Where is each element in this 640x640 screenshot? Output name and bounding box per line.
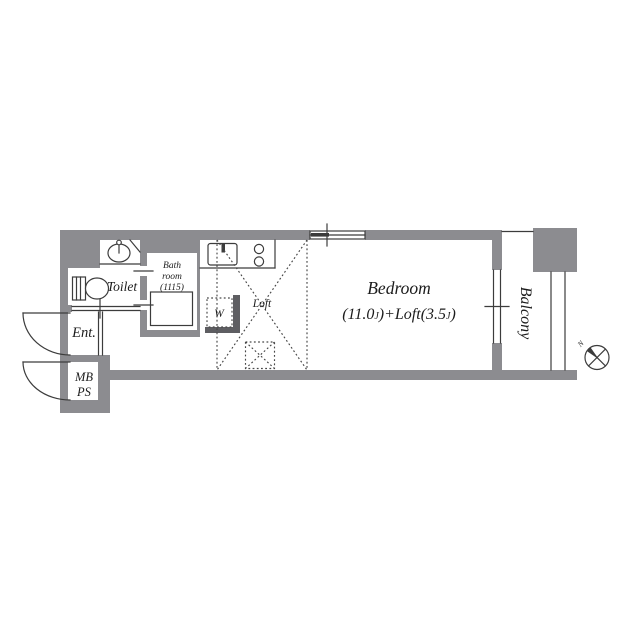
wall-east-upper [492, 240, 502, 270]
wall-top-right-run [365, 230, 502, 240]
closet-label: W [214, 308, 225, 320]
wall-bottom-left-block [60, 400, 110, 413]
plan-background [0, 0, 640, 640]
balcony-label: Balcony [517, 287, 534, 340]
meter-box-label-line1: MB [74, 370, 93, 384]
bathroom-label-line1: Bath [163, 261, 181, 271]
floor-plan: N Toilet Bath room (1115) Ent. MB PS W L… [0, 0, 640, 640]
basin-tap [117, 240, 122, 245]
bedroom-size-close: ) [449, 306, 455, 323]
wall-bottom [98, 370, 577, 380]
wall-ent-mbps-divider [60, 355, 110, 362]
toilet-tank [73, 277, 86, 300]
bedroom-size-mid: )+Loft(3.5 [378, 306, 446, 323]
wall-east-lower [492, 343, 502, 370]
north-window-pane [311, 233, 329, 237]
bedroom-size-label: (11.0J)+Loft(3.5J) [342, 306, 456, 323]
toilet-label: Toilet [107, 279, 139, 294]
toilet-bowl [86, 278, 109, 299]
closet-wall-bottom [205, 327, 240, 333]
meter-box-label-line2: PS [76, 385, 92, 399]
bedroom-label: Bedroom [367, 278, 431, 298]
wall-left [60, 230, 68, 413]
bedroom-size-open: (11.0 [342, 306, 374, 323]
floor-plan-svg: N Toilet Bath room (1115) Ent. MB PS W L… [0, 0, 640, 640]
entrance-label: Ent. [71, 325, 96, 341]
loft-label: Loft [252, 298, 272, 310]
bathroom-label-line2: room [162, 272, 182, 282]
toilet-fixture [73, 277, 109, 300]
bathroom-label-line3: (1115) [160, 282, 184, 293]
wall-toilet-bottom-stub [60, 305, 72, 312]
wall-balcony-corner-block [533, 228, 577, 272]
wall-mbps-right [98, 362, 110, 400]
